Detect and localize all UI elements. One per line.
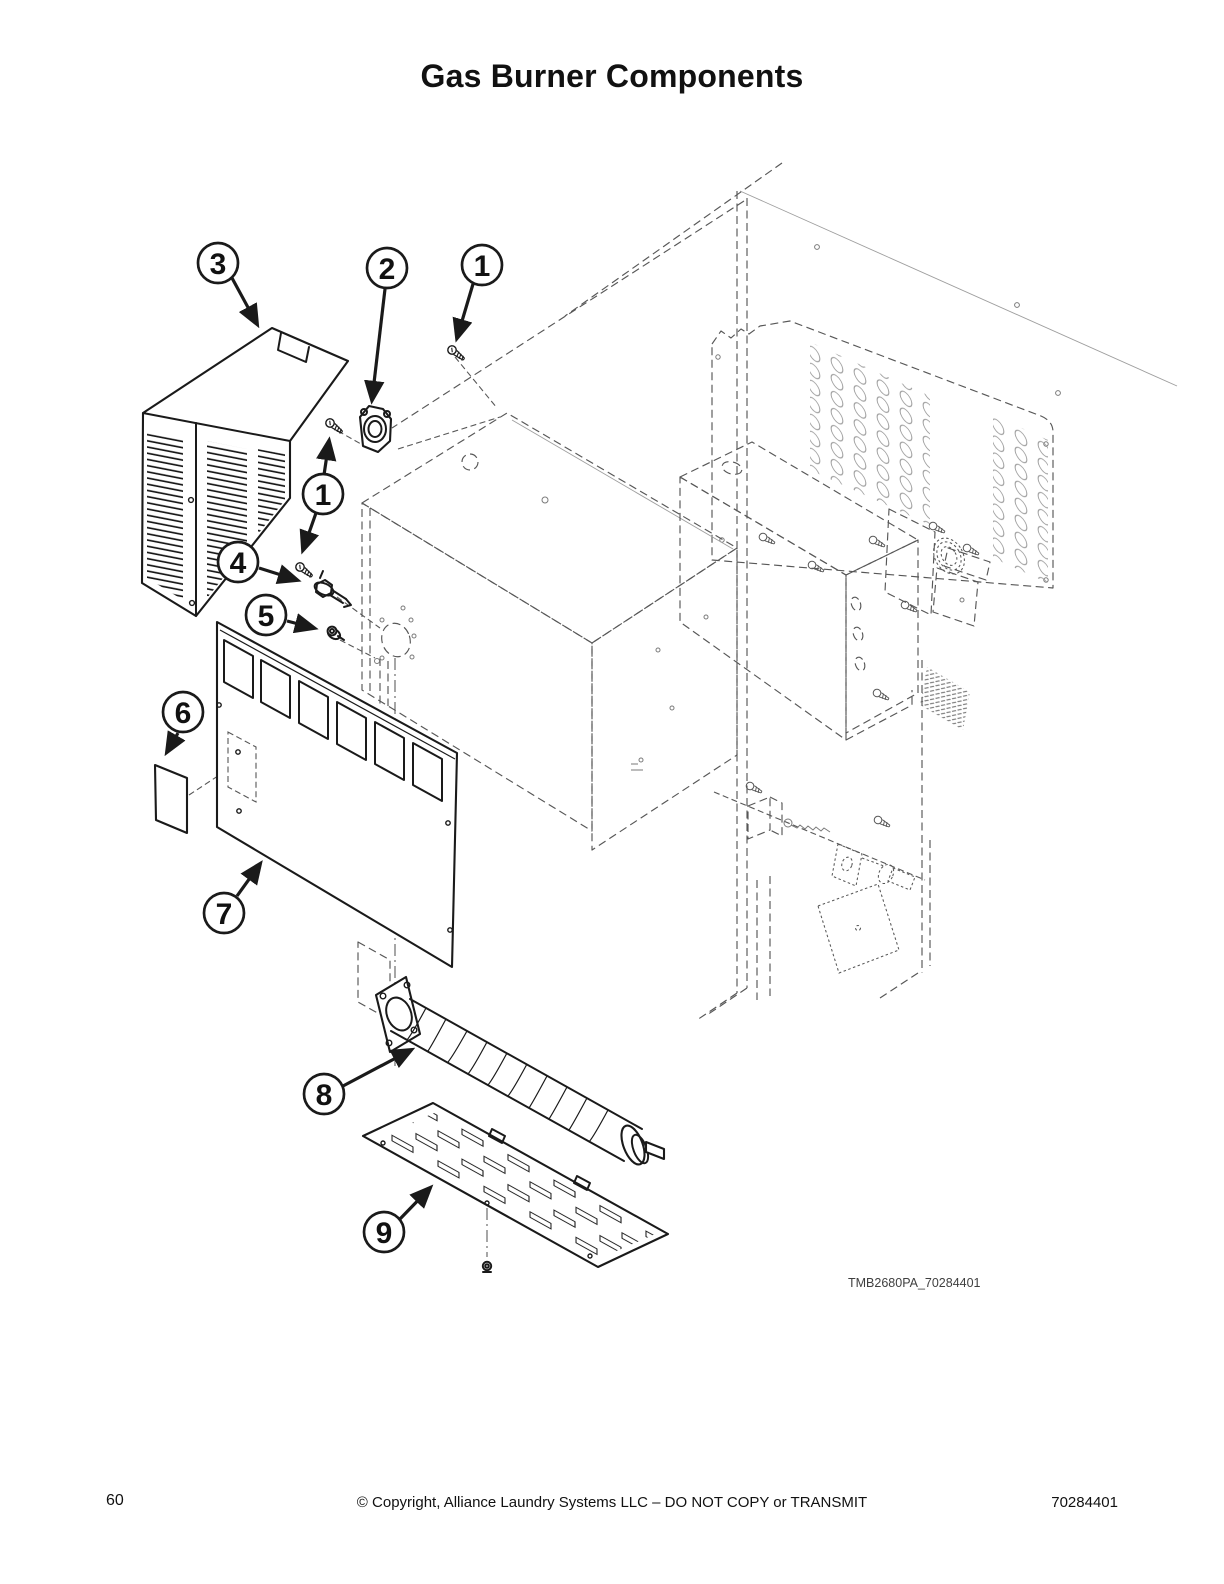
callout-3: 3	[198, 243, 238, 283]
vent-grille	[920, 667, 970, 730]
callout-label: 3	[210, 248, 227, 281]
burner-tube-opening	[377, 620, 414, 661]
callout-label: 9	[376, 1217, 393, 1250]
orifice-plate-ghost	[818, 884, 899, 973]
igniter-electrode	[313, 571, 351, 607]
callout-6: 6	[163, 692, 203, 732]
manual-page: Gas Burner Components	[0, 0, 1224, 1584]
screw-1b	[324, 417, 344, 435]
manifold-assembly-ghost	[714, 660, 930, 1000]
callout-label: 2	[379, 253, 396, 286]
callout-8: 8	[304, 1074, 344, 1114]
plate-screw	[483, 1262, 491, 1272]
ghost-cabinet-structure	[189, 163, 1177, 1068]
callout-2: 2	[367, 248, 407, 288]
callout-label: 6	[175, 697, 192, 730]
gas-valve-ghost	[885, 509, 990, 626]
callout-label: 5	[258, 600, 275, 633]
callout-1-top: 1	[462, 245, 502, 285]
warning-label	[155, 765, 187, 833]
exploded-parts-diagram: 3 2 1 1 4 5 6 7	[0, 0, 1224, 1584]
screw-1c	[294, 561, 314, 579]
screw-1a	[446, 344, 466, 362]
callout-label: 4	[230, 547, 247, 580]
callout-label: 1	[474, 250, 491, 283]
cabinet-top-edge	[740, 191, 1177, 386]
callout-5: 5	[246, 595, 286, 635]
callout-label: 7	[216, 898, 233, 931]
screw-with-washer	[326, 627, 344, 642]
footer-doc-number: 70284401	[1051, 1494, 1118, 1511]
air-inlet-flange	[360, 406, 391, 452]
burner-front-panel	[217, 622, 457, 967]
callout-label: 8	[316, 1079, 333, 1112]
callout-label: 1	[315, 479, 332, 512]
page-footer: 60 © Copyright, Alliance Laundry Systems…	[0, 1492, 1224, 1522]
figure-caption: TMB2680PA_70284401	[848, 1276, 981, 1290]
rear-perforated-panel	[712, 321, 1053, 588]
footer-copyright: © Copyright, Alliance Laundry Systems LL…	[0, 1494, 1224, 1511]
callout-4: 4	[218, 542, 258, 582]
callout-7: 7	[204, 893, 244, 933]
callout-9: 9	[364, 1212, 404, 1252]
callout-1-mid: 1	[303, 474, 343, 514]
